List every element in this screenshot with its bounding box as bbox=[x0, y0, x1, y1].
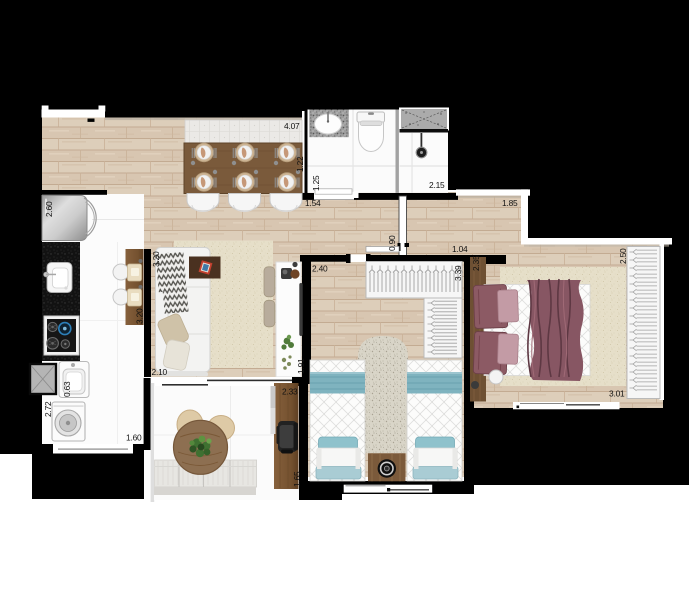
svg-text:0.90: 0.90 bbox=[387, 235, 397, 251]
svg-text:3.39: 3.39 bbox=[453, 265, 463, 281]
svg-text:1.25: 1.25 bbox=[311, 175, 321, 191]
svg-text:1.65: 1.65 bbox=[292, 471, 302, 487]
svg-text:2.40: 2.40 bbox=[312, 264, 328, 274]
svg-text:2.10: 2.10 bbox=[152, 367, 168, 377]
svg-text:4.07: 4.07 bbox=[284, 121, 300, 131]
svg-text:2.60: 2.60 bbox=[44, 201, 54, 217]
svg-text:2.50: 2.50 bbox=[618, 248, 628, 264]
svg-text:1.22: 1.22 bbox=[295, 156, 305, 172]
svg-text:1.91: 1.91 bbox=[296, 358, 306, 374]
svg-text:3.20: 3.20 bbox=[151, 251, 161, 267]
svg-text:3.01: 3.01 bbox=[609, 389, 625, 399]
svg-text:1.60: 1.60 bbox=[126, 433, 142, 443]
svg-text:1.04: 1.04 bbox=[452, 244, 468, 254]
svg-text:1.54: 1.54 bbox=[305, 198, 321, 208]
svg-text:2.35: 2.35 bbox=[471, 255, 481, 271]
svg-text:2.33: 2.33 bbox=[282, 387, 298, 397]
svg-text:0.63: 0.63 bbox=[62, 381, 72, 397]
svg-text:1.85: 1.85 bbox=[502, 198, 518, 208]
svg-text:2.72: 2.72 bbox=[43, 401, 53, 417]
svg-text:2.15: 2.15 bbox=[429, 180, 445, 190]
svg-text:3.20: 3.20 bbox=[135, 308, 145, 324]
